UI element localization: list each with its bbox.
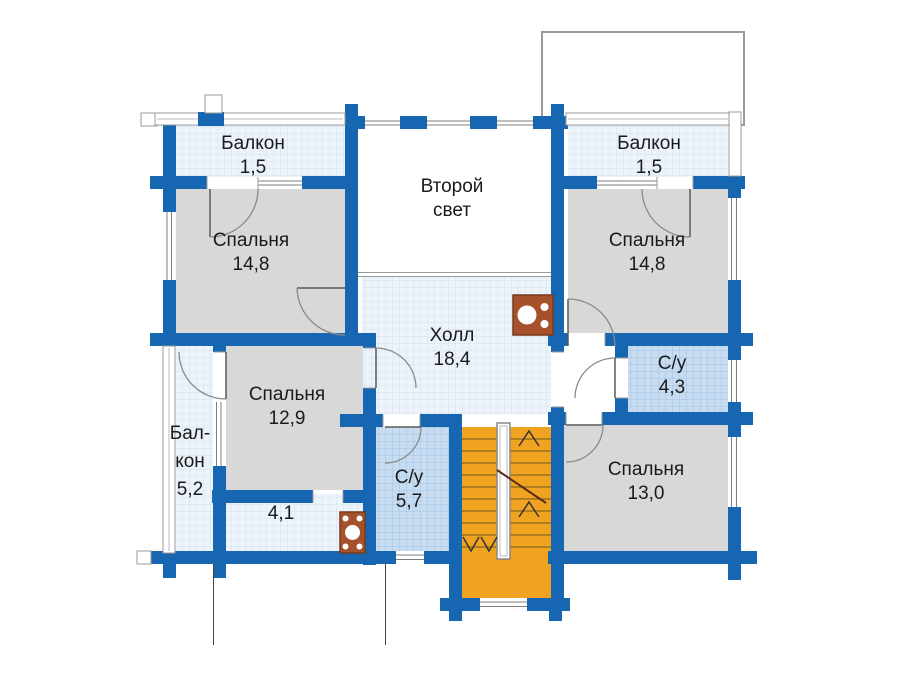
- room-label-bedroom-top-left: Спальня 14,8: [213, 229, 289, 277]
- room-label-bathroom-center: С/у 5,7: [395, 466, 424, 514]
- room-label-bedroom-top-right: Спальня 14,8: [609, 229, 685, 277]
- room-label-corridor: 4,1: [268, 502, 294, 526]
- room-label-balcony-top-left: Балкон 1,5: [221, 132, 285, 180]
- room-label-bedroom-middle: Спальня 12,9: [249, 383, 325, 431]
- floor-plan: Балкон 1,5 Балкон 1,5 Второй свет Спальн…: [0, 0, 900, 675]
- fireplace-icon: [513, 295, 553, 335]
- reference-lines: [214, 563, 386, 645]
- room-label-bathroom-right: С/у 4,3: [658, 352, 687, 400]
- roof-outline: [542, 32, 744, 125]
- room-label-bedroom-bottom-right: Спальня 13,0: [608, 458, 684, 506]
- room-label-balcony-side: Бал- кон 5,2: [170, 420, 210, 504]
- room-label-hall: Холл 18,4: [430, 324, 475, 372]
- room-vestibule: [564, 346, 615, 412]
- stove-icon: [340, 512, 365, 553]
- room-label-second-light: Второй свет: [421, 175, 484, 223]
- room-label-balcony-top-right: Балкон 1,5: [617, 132, 681, 180]
